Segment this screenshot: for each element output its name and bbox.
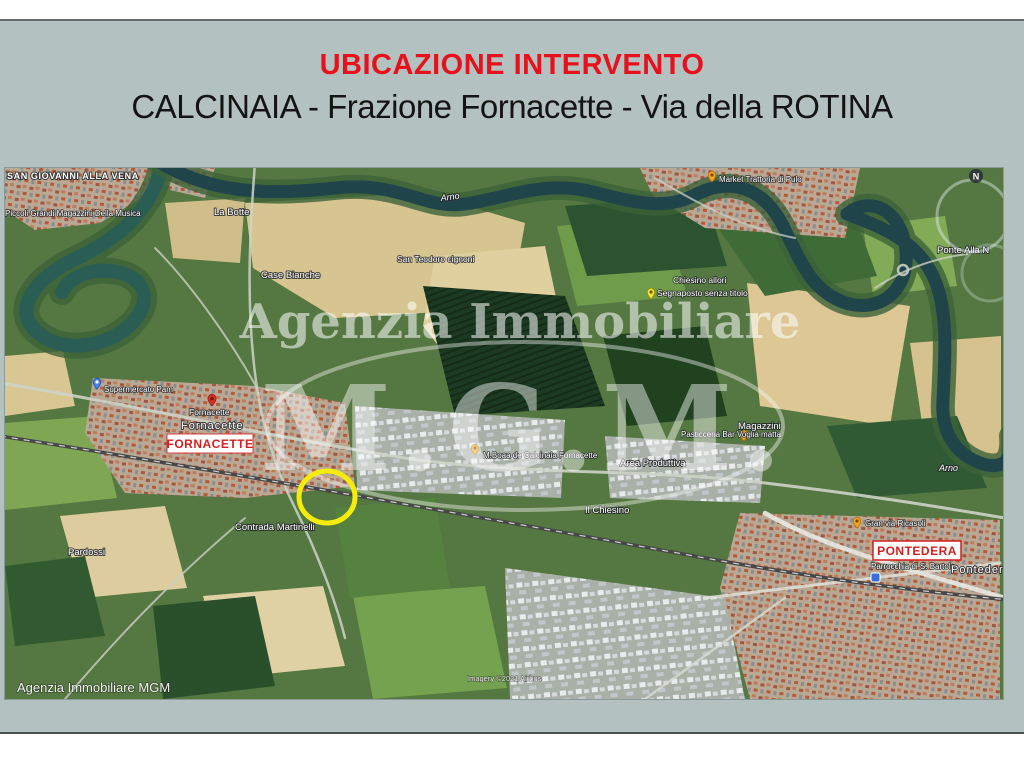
imagery-attribution: Imagery ©2021 Airbus xyxy=(467,674,542,683)
page-title: UBICAZIONE INTERVENTO xyxy=(0,49,1024,82)
watermark: Agenzia Immobiliare M.G.M. xyxy=(239,294,801,510)
label-fornacette-town: Fornacette xyxy=(181,420,244,432)
label-contrada-martinelli: Contrada Martinelli xyxy=(235,522,315,533)
label-supermercato-pam: Supermercato Pam xyxy=(104,385,173,394)
page: UBICAZIONE INTERVENTO CALCINAIA - Frazio… xyxy=(0,0,1024,768)
page-subtitle: CALCINAIA - Frazione Fornacette - Via de… xyxy=(0,88,1024,126)
slide-background: UBICAZIONE INTERVENTO CALCINAIA - Frazio… xyxy=(0,19,1024,734)
callout-fornacette: FORNACETTE xyxy=(167,434,254,453)
label-gran-via-ricasoli: Gran via Ricasoli xyxy=(865,519,926,528)
label-san-teodoro: San Teodoro cignoni xyxy=(397,254,474,264)
callout-fornacette-text: FORNACETTE xyxy=(167,437,254,451)
label-fornacette-pin: Fornacette xyxy=(189,407,230,417)
credit-text: Agenzia Immobiliare MGM xyxy=(17,680,170,695)
label-la-botte: La Botte xyxy=(214,207,249,218)
label-arno-2: Arno xyxy=(938,463,958,473)
watermark-monogram: M.G.M. xyxy=(260,359,789,498)
callout-pontedera-text: PONTEDERA xyxy=(877,544,957,558)
label-san-giovanni-alla-vena: SAN GIOVANNI ALLA VENA xyxy=(7,171,139,181)
transit-station-icon xyxy=(871,573,880,582)
label-case-bianche: Case Bianche xyxy=(261,270,320,281)
label-magazzini-della-musica: Piccoli Grandi Magazzini Della Musica xyxy=(5,209,141,218)
label-pontedera-town: Pontedera xyxy=(951,564,1003,576)
label-parrocchia: Parrocchia di S. Bartolo xyxy=(871,562,956,571)
label-chiesino-allori: Chiesino allori xyxy=(673,275,726,285)
callout-pontedera: PONTEDERA xyxy=(873,541,961,560)
label-trattoria-di-pulo: Market Trattoria di Pulo xyxy=(719,175,802,184)
label-pardossi: Pardossi xyxy=(68,547,105,558)
compass-letter: N xyxy=(973,172,980,182)
satellite-map: SAN GIOVANNI ALLA VENA Piccoli Grandi Ma… xyxy=(5,168,1003,699)
